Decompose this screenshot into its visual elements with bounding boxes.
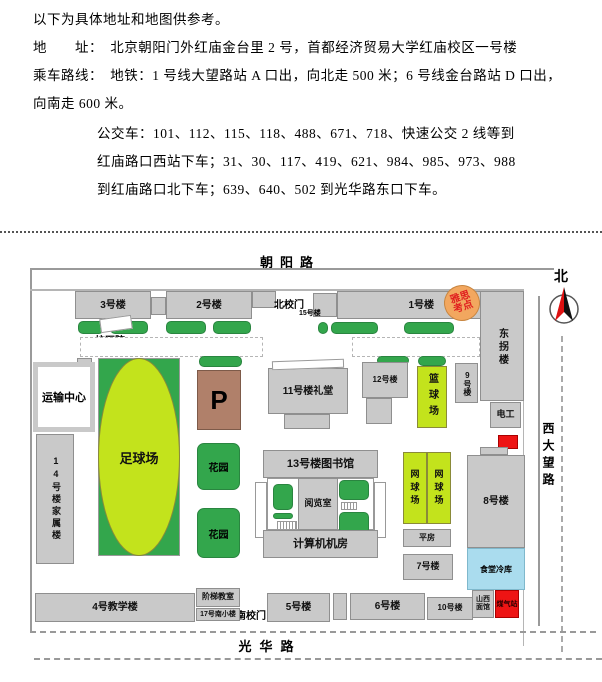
building-4: 4号教学楼 — [35, 593, 195, 622]
intro-address-line: 地 址： 北京朝阳门外红庙金台里 2 号，首都经济贸易大学红庙校区一号楼 — [33, 36, 517, 56]
wall-left — [30, 268, 32, 631]
lawn-west — [80, 337, 263, 357]
building-ext — [252, 291, 276, 308]
intro-route-line: 乘车路线： 地铁：1 号线大望路站 A 口出，向北走 500 米；6 号线金台路… — [33, 64, 561, 84]
building-7: 7号楼 — [403, 554, 453, 580]
building-1-label: 1号楼 — [408, 300, 434, 311]
computer-room: 计算机机房 — [263, 530, 378, 558]
intro-bus-line-2: 红庙路口西站下车；31、30、117、419、621、984、985、973、9… — [97, 150, 516, 170]
building-9-label: 9号楼 — [462, 371, 471, 396]
building-5-label: 5号楼 — [286, 602, 312, 613]
building-5: 5号楼 — [267, 593, 330, 622]
building-10: 10号楼 — [427, 597, 473, 620]
building-3: 3号楼 — [75, 291, 151, 319]
road-label-xidawang: 西大望路 — [540, 422, 557, 490]
document-page: 以下为具体地址和地图供参考。 地 址： 北京朝阳门外红庙金台里 2 号，首都经济… — [0, 0, 602, 682]
building-11-tab — [284, 414, 330, 429]
garden-1-label: 花园 — [209, 459, 229, 474]
building-east-wing: 东拐楼 — [480, 291, 524, 401]
building-8-tab — [480, 447, 508, 455]
building-11-label: 11号楼礼堂 — [283, 386, 334, 397]
tennis-court-1: 网球场 — [403, 452, 427, 524]
building-6: 6号楼 — [350, 593, 425, 620]
intro-bus-line-3: 到红庙路口北下车；639、640、502 到光华路东口下车。 — [97, 178, 446, 198]
bush — [418, 356, 446, 366]
road-line-top — [30, 268, 554, 270]
building-9: 9号楼 — [455, 363, 478, 403]
intro-bus-line-1: 公交车：101、112、115、118、488、671、718、快速公交 2 线… — [97, 122, 515, 142]
stairs — [277, 521, 297, 530]
tennis-court-2: 网球场 — [427, 452, 451, 524]
building-12-stem — [366, 398, 392, 424]
garden-2-label: 花园 — [209, 526, 229, 541]
bush — [318, 322, 328, 334]
building-8-label: 8号楼 — [483, 496, 509, 507]
gas-station-label: 煤气站 — [497, 599, 518, 609]
tree — [273, 484, 293, 510]
basketball-court: 篮球场 — [417, 366, 447, 428]
building-7-label: 7号楼 — [416, 562, 439, 572]
garden-2: 花园 — [197, 508, 240, 558]
tree — [273, 513, 293, 519]
building-13-label: 13号楼图书馆 — [287, 458, 354, 470]
stairs — [341, 502, 357, 510]
football-field-label: 足球场 — [119, 448, 158, 467]
noodle-shop: 山西 面馆 — [472, 590, 494, 618]
bush — [404, 322, 454, 334]
tennis-courts: 网球场 网球场 — [403, 452, 451, 524]
parking-label: P — [210, 385, 227, 416]
intro-line-1: 以下为具体地址和地图供参考。 — [33, 8, 229, 28]
building-8: 8号楼 — [467, 455, 525, 548]
building-13-library: 13号楼图书馆 — [263, 450, 378, 478]
building-17: 17号南小楼 — [196, 608, 240, 621]
road-line-bottom-1 — [30, 631, 596, 633]
dotted-separator — [0, 231, 602, 233]
east-wing-label: 东拐楼 — [497, 328, 508, 367]
computer-room-label: 计算机机房 — [293, 538, 348, 550]
compass-icon — [544, 284, 584, 339]
building-3-label: 3号楼 — [100, 300, 126, 311]
garden-1: 花园 — [197, 443, 240, 490]
road-line-bottom-2 — [34, 658, 602, 660]
noodle-shop-label-1: 山西 — [476, 596, 490, 604]
campus-map: 朝阳路 光华路 西大望路 北 3号楼 2号楼 北校门 15号楼 — [0, 244, 602, 682]
electrician-label: 电工 — [496, 410, 514, 420]
stepped-classroom: 阶梯教室 — [196, 588, 240, 607]
road-label-guanghua: 光华路 — [210, 636, 330, 655]
canteen-cold-storage-label: 食堂冷库 — [480, 564, 512, 575]
transport-center-label: 运输中心 — [42, 389, 86, 405]
electrician-room: 电工 — [490, 402, 521, 428]
north-label: 北 — [554, 266, 568, 286]
tennis-court-1-label: 网球场 — [409, 469, 422, 508]
road-line-right-dashed — [561, 336, 563, 652]
intro-route-line-2: 向南走 600 米。 — [33, 92, 133, 112]
building-12-label: 12号楼 — [373, 376, 398, 385]
parking-lot: P — [197, 370, 241, 430]
building-11: 11号楼礼堂 — [268, 368, 348, 414]
transport-center: 运输中心 — [33, 362, 95, 432]
bush — [331, 322, 378, 334]
stepped-classroom-label: 阶梯教室 — [202, 593, 234, 602]
noodle-shop-label-2: 面馆 — [476, 604, 490, 612]
football-field: 足球场 — [98, 358, 180, 556]
lawn-east — [352, 337, 480, 357]
building-14-label: 14号楼家属楼 — [50, 456, 60, 542]
bush — [166, 321, 206, 334]
bungalow: 平房 — [403, 529, 451, 547]
bush — [213, 321, 251, 334]
bush — [199, 356, 242, 367]
building-6-annex — [333, 593, 347, 620]
building-connector — [151, 297, 166, 315]
tree — [339, 480, 369, 500]
bungalow-label: 平房 — [419, 534, 435, 543]
canteen-cold-storage: 食堂冷库 — [467, 548, 525, 590]
building-2: 2号楼 — [166, 291, 252, 319]
building-10-label: 10号楼 — [438, 604, 463, 613]
building-12: 12号楼 — [362, 362, 408, 398]
reading-room: 阅览室 — [298, 478, 338, 530]
gas-station: 煤气站 — [495, 590, 519, 618]
building-15-label: 15号楼 — [299, 308, 321, 318]
building-4-label: 4号教学楼 — [92, 602, 138, 613]
building-2-label: 2号楼 — [196, 300, 222, 311]
building-14: 14号楼家属楼 — [36, 434, 74, 564]
south-gate-label: 南校门 — [236, 607, 266, 622]
building-17-label: 17号南小楼 — [200, 611, 236, 619]
basketball-court-label: 篮球场 — [425, 373, 440, 421]
tennis-court-2-label: 网球场 — [433, 469, 446, 508]
reading-room-label: 阅览室 — [304, 499, 331, 509]
building-6-label: 6号楼 — [375, 601, 401, 612]
